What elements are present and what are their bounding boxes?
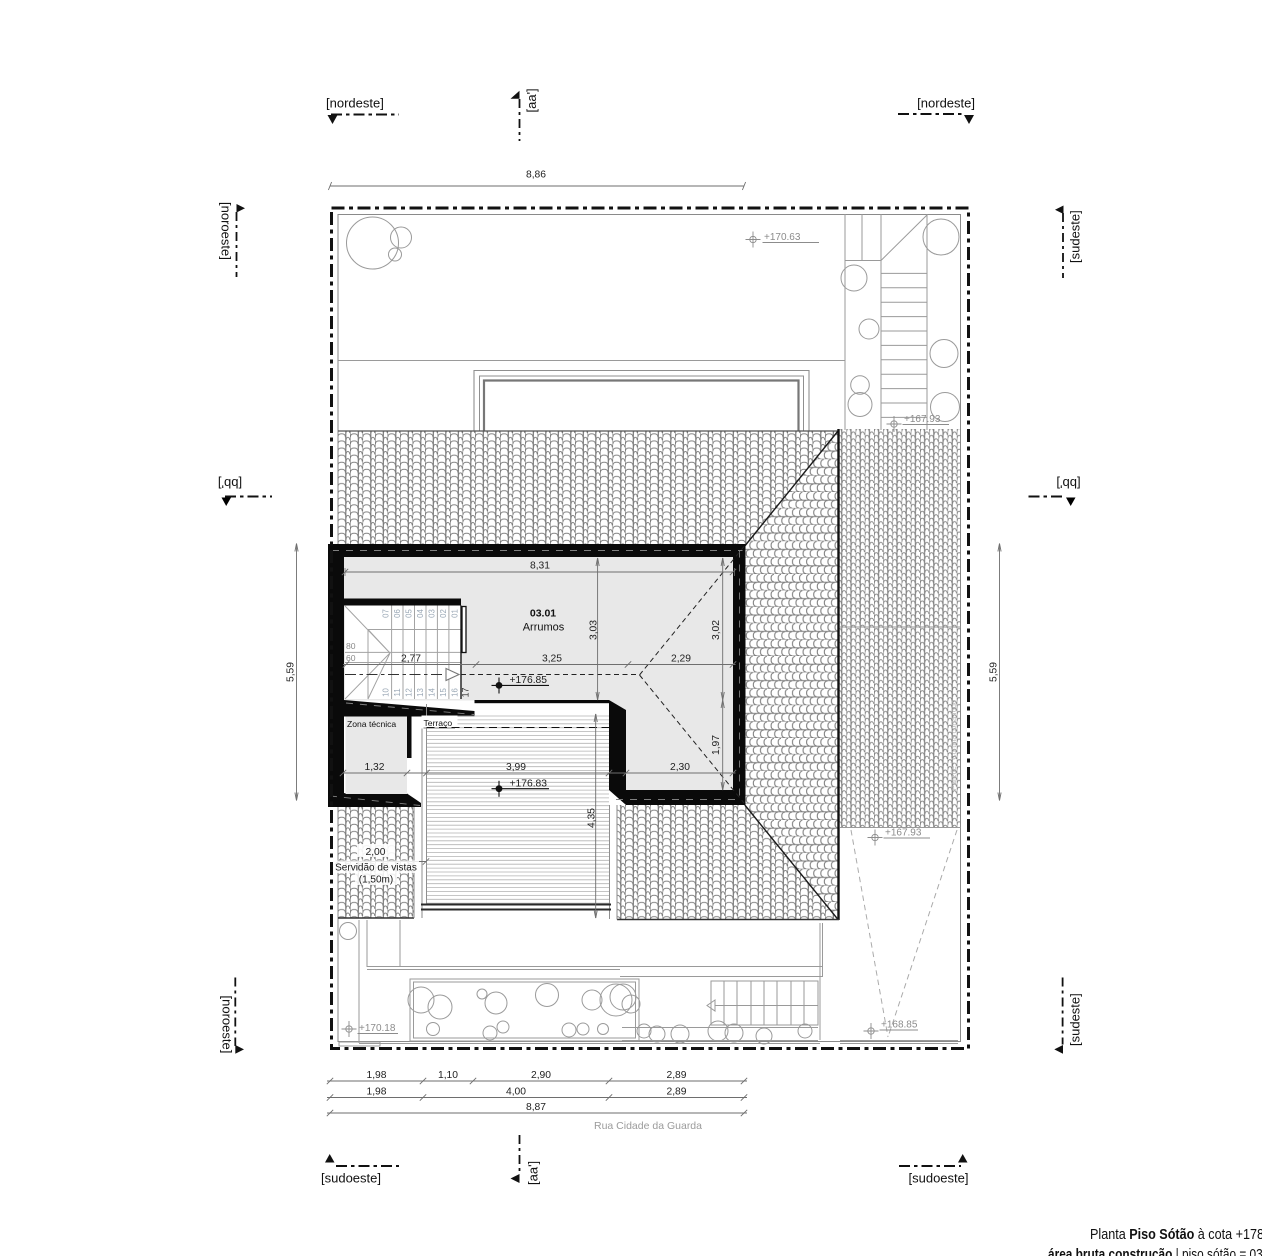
svg-text:[nordeste]: [nordeste] (326, 96, 384, 111)
svg-text:[sudoeste]: [sudoeste] (909, 1171, 969, 1186)
svg-text:+170.63: +170.63 (764, 232, 801, 243)
svg-text:2,00: 2,00 (365, 847, 385, 858)
svg-text:+176.83: +176.83 (510, 778, 548, 789)
svg-text:8,31: 8,31 (530, 561, 550, 572)
svg-text:+176.85: +176.85 (510, 675, 548, 686)
svg-text:14: 14 (428, 688, 437, 697)
svg-text:04: 04 (416, 609, 425, 618)
svg-text:12: 12 (405, 688, 414, 697)
svg-text:15: 15 (439, 688, 448, 697)
svg-text:03: 03 (428, 609, 437, 618)
svg-text:1,32: 1,32 (364, 762, 384, 773)
svg-text:05: 05 (405, 609, 414, 618)
svg-text:2,89: 2,89 (666, 1087, 686, 1098)
svg-text:13: 13 (416, 688, 425, 697)
svg-text:02: 02 (439, 609, 448, 618)
svg-text:[bb']: [bb'] (1056, 476, 1080, 491)
svg-text:5,59: 5,59 (286, 662, 297, 682)
svg-text:3,02: 3,02 (711, 620, 722, 640)
svg-text:2,30: 2,30 (670, 762, 690, 773)
svg-text:07: 07 (382, 609, 391, 618)
svg-text:[bb']: [bb'] (218, 476, 242, 491)
svg-text:5,59: 5,59 (989, 662, 1000, 682)
svg-text:área bruta construção | piso s: área bruta construção | piso sótão = 03. (1048, 1247, 1262, 1256)
svg-text:80: 80 (346, 641, 356, 651)
svg-text:[sudeste]: [sudeste] (1068, 210, 1083, 263)
svg-text:Zona técnica: Zona técnica (347, 719, 396, 729)
svg-text:60: 60 (346, 653, 356, 663)
svg-text:Terraço: Terraço (424, 718, 453, 728)
svg-text:+168.85: +168.85 (881, 1020, 918, 1031)
svg-text:[sudoeste]: [sudoeste] (321, 1171, 381, 1186)
svg-text:[aa']: [aa'] (526, 1161, 541, 1185)
svg-text:1,98: 1,98 (366, 1087, 386, 1098)
svg-text:4,00: 4,00 (506, 1087, 526, 1098)
svg-text:10: 10 (382, 688, 391, 697)
svg-text:[sudeste]: [sudeste] (1068, 993, 1083, 1046)
svg-text:03.01: 03.01 (530, 608, 556, 620)
svg-text:8,86: 8,86 (526, 170, 546, 181)
svg-text:(1,50m): (1,50m) (359, 875, 393, 886)
svg-text:1,98: 1,98 (366, 1070, 386, 1081)
svg-text:[aa']: [aa'] (524, 88, 539, 112)
svg-text:Parede / Cortina corta-fogo: Parede / Cortina corta-fogo (949, 700, 958, 790)
svg-text:Planta Piso Sótão à cota +178: Planta Piso Sótão à cota +178 (1090, 1227, 1262, 1243)
svg-text:+170.18: +170.18 (359, 1023, 396, 1034)
svg-text:2,29: 2,29 (671, 654, 691, 665)
svg-text:8,87: 8,87 (526, 1102, 546, 1113)
svg-text:+167.93: +167.93 (885, 828, 922, 839)
svg-text:3,03: 3,03 (588, 620, 599, 640)
svg-text:01: 01 (451, 609, 460, 618)
svg-text:17: 17 (461, 688, 471, 698)
svg-text:1,10: 1,10 (438, 1070, 458, 1081)
svg-text:2,77: 2,77 (401, 654, 421, 665)
svg-text:Servidão de vistas: Servidão de vistas (335, 863, 417, 874)
svg-text:[noroeste]: [noroeste] (220, 996, 235, 1054)
svg-text:2,90: 2,90 (531, 1070, 551, 1081)
svg-text:11: 11 (393, 688, 402, 696)
svg-text:Rua Cidade da Guarda: Rua Cidade da Guarda (594, 1120, 702, 1132)
svg-text:+167.93: +167.93 (904, 414, 941, 425)
svg-text:[nordeste]: [nordeste] (917, 96, 975, 111)
svg-text:06: 06 (393, 609, 402, 618)
svg-text:4,35: 4,35 (586, 808, 597, 828)
svg-text:[noroeste]: [noroeste] (219, 202, 234, 260)
svg-text:Arrumos: Arrumos (523, 622, 565, 634)
svg-text:3,25: 3,25 (542, 654, 562, 665)
svg-text:1,97: 1,97 (711, 735, 722, 755)
svg-text:2,89: 2,89 (666, 1070, 686, 1081)
svg-text:16: 16 (451, 688, 460, 697)
svg-text:3,99: 3,99 (506, 762, 526, 773)
